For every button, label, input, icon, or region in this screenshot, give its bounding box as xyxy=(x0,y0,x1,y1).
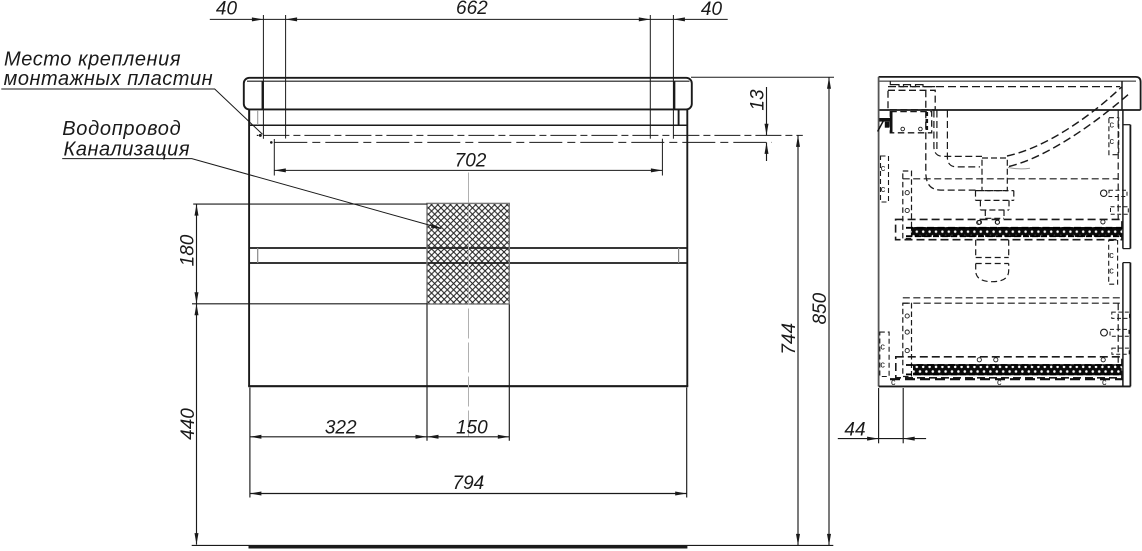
svg-text:Канализация: Канализация xyxy=(64,139,190,161)
svg-text:c: c xyxy=(880,360,885,370)
svg-text:180: 180 xyxy=(178,234,199,266)
svg-text:850: 850 xyxy=(810,292,831,324)
svg-text:c: c xyxy=(880,342,885,352)
svg-text:Водопровод: Водопровод xyxy=(62,118,181,140)
svg-text:40: 40 xyxy=(701,0,723,20)
svg-text:c: c xyxy=(1109,266,1114,276)
svg-text:662: 662 xyxy=(456,0,488,19)
svg-text:c: c xyxy=(1109,250,1114,260)
svg-text:c: c xyxy=(1102,377,1107,387)
svg-text:c: c xyxy=(881,184,886,194)
svg-text:c: c xyxy=(891,377,896,387)
svg-text:440: 440 xyxy=(178,408,199,440)
svg-text:794: 794 xyxy=(453,473,485,494)
svg-text:322: 322 xyxy=(325,418,357,439)
svg-text:702: 702 xyxy=(455,150,487,171)
svg-text:c: c xyxy=(997,377,1002,387)
svg-text:монтажных пластин: монтажных пластин xyxy=(4,68,213,90)
svg-text:150: 150 xyxy=(456,418,488,439)
svg-text:c: c xyxy=(1110,120,1115,130)
svg-text:744: 744 xyxy=(779,323,800,355)
svg-text:c: c xyxy=(881,163,886,173)
svg-text:44: 44 xyxy=(844,420,865,441)
svg-text:40: 40 xyxy=(216,0,238,20)
svg-text:13: 13 xyxy=(748,89,769,111)
svg-text:c: c xyxy=(1110,136,1115,146)
svg-text:Место крепления: Место крепления xyxy=(4,49,181,71)
